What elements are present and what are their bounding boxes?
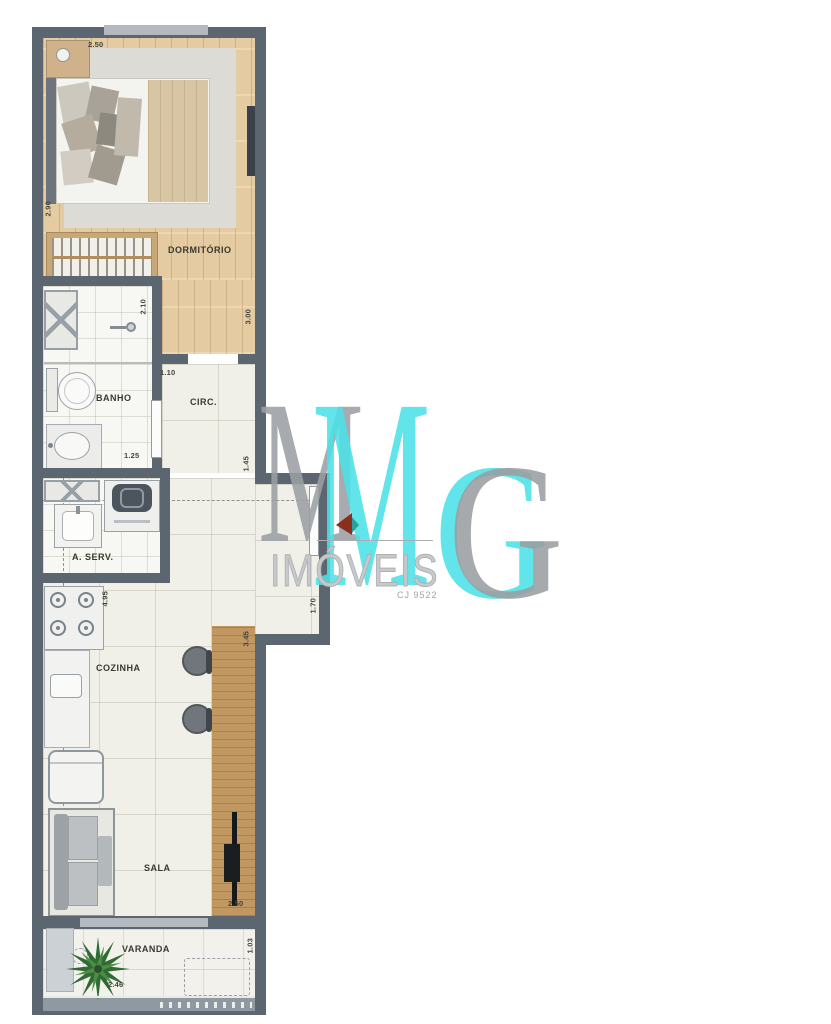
wall-left <box>32 27 43 1015</box>
kitchen-counter <box>44 650 90 748</box>
sink-icon <box>54 432 90 460</box>
burner-dot <box>56 626 60 630</box>
watermark-letter-g-gray: G <box>448 435 563 630</box>
room-label-cozinha: COZINHA <box>96 664 141 673</box>
room-label-aserv: A. SERV. <box>72 553 114 562</box>
dim-varanda-width: 2.46 <box>108 981 123 989</box>
window-varanda-door <box>80 918 208 927</box>
room-label-circ: CIRC. <box>190 398 217 407</box>
dim-bancada-depth: 3.45 <box>242 624 250 654</box>
door-jamb-dorm-left <box>188 354 192 364</box>
laundry-tank-basin <box>62 511 94 541</box>
wardrobe-clothes <box>52 238 152 280</box>
washer-panel <box>114 520 150 523</box>
wall-dorm-banho <box>32 276 162 286</box>
room-label-dormitorio: DORMITÓRIO <box>168 246 232 255</box>
floor-dormitorio-ext <box>162 280 255 354</box>
wall-right-lower <box>255 634 266 1015</box>
watermark-arrow-icon <box>336 512 360 543</box>
bed-headboard <box>46 78 56 204</box>
fridge-line <box>50 762 102 764</box>
wall-banho-aserv <box>32 468 162 478</box>
wall-aserv-cozinha <box>43 573 170 583</box>
wall-dorm-circ-right <box>238 354 255 364</box>
dim-circ-depth: 1.45 <box>242 449 250 479</box>
toilet-tank <box>46 368 58 412</box>
railing-top-line <box>43 996 255 998</box>
wardrobe-rail <box>52 256 152 259</box>
plant-icon <box>66 936 130 1002</box>
dim-circ-width: 1.10 <box>160 369 175 377</box>
dim-dorm-depth-left: 2.90 <box>44 194 52 224</box>
shower-head-icon <box>126 322 136 332</box>
window-dormitorio <box>104 25 208 35</box>
stool-backrest <box>206 650 212 674</box>
stool-backrest <box>206 708 212 732</box>
watermark-divider-line <box>317 540 433 541</box>
burner-dot <box>84 598 88 602</box>
watermark-license: CJ 9522 <box>397 591 438 600</box>
shower-arm-icon <box>110 326 126 329</box>
sofa-cushion <box>68 862 98 906</box>
laundry-faucet-icon <box>76 506 80 514</box>
railing-dots <box>160 1002 252 1008</box>
dim-banho-width: 1.25 <box>124 452 139 460</box>
sofa-chaise <box>98 836 112 886</box>
pillow <box>114 97 142 157</box>
room-label-banho: BANHO <box>96 394 132 403</box>
door-jamb-dorm-right <box>234 354 238 364</box>
shaft-hatch-banho <box>44 290 78 350</box>
dim-cozinha-depth: 4.95 <box>101 584 109 614</box>
room-label-sala: SALA <box>144 864 171 873</box>
dim-sala-width: 2.50 <box>228 900 243 908</box>
wall-aserv-right <box>160 468 170 583</box>
varanda-dashed-furniture <box>184 958 250 996</box>
toilet-bowl-inner <box>64 378 90 404</box>
floorplan-canvas: DORMITÓRIO BANHO CIRC. A. SERV. COZINHA … <box>0 0 831 1024</box>
bed-blanket <box>148 80 208 202</box>
sofa-cushion <box>68 816 98 860</box>
burner-dot <box>84 626 88 630</box>
fridge-icon <box>48 750 104 804</box>
shaft-hatch-aserv <box>44 480 100 502</box>
window-dormitorio-side <box>247 106 255 176</box>
dim-banho-depth: 2.10 <box>139 292 147 322</box>
washer-drum-inner <box>120 488 144 508</box>
dim-dorm-width: 2.50 <box>88 41 103 49</box>
dim-varanda-depth: 1.03 <box>246 931 254 961</box>
door-banho <box>151 400 162 458</box>
lamp-icon <box>56 48 70 62</box>
burner-dot <box>56 598 60 602</box>
kitchen-sink-icon <box>50 674 82 698</box>
wall-dorm-circ-left <box>162 354 190 364</box>
pillow <box>60 149 93 186</box>
room-label-varanda: VARANDA <box>122 945 170 954</box>
shower-divider <box>44 362 152 364</box>
watermark-brand: IMÓVEIS <box>270 548 439 593</box>
dim-dorm-depth-right: 3.00 <box>244 302 252 332</box>
faucet-icon <box>48 443 53 448</box>
sofa-back <box>54 814 68 910</box>
tv-body <box>224 844 240 882</box>
